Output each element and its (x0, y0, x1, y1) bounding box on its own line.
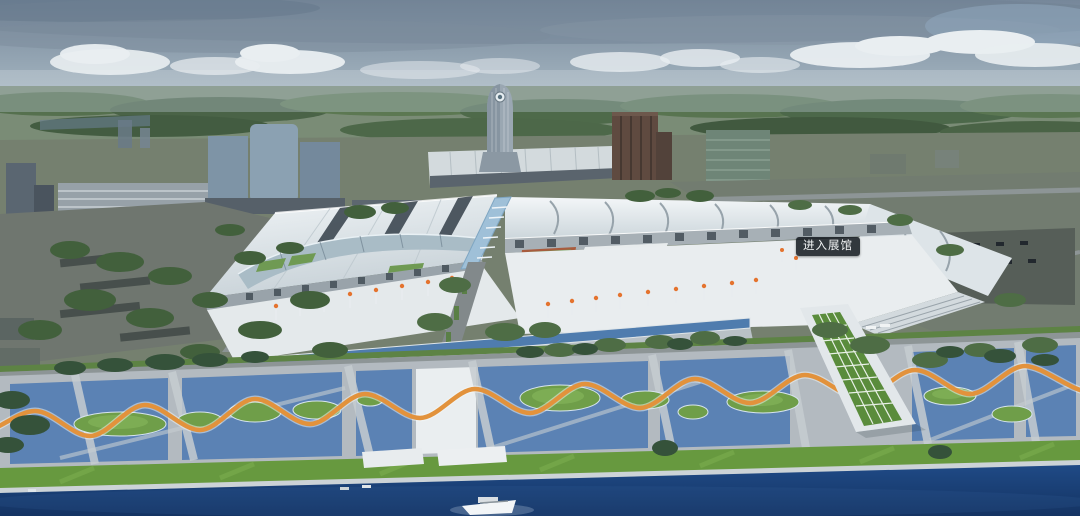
promenade-plaza (416, 367, 476, 454)
small-boat (28, 489, 36, 492)
hotspot-button[interactable]: 进入展馆 (796, 237, 860, 256)
small-boat (340, 487, 349, 490)
virtual-tour-scene: 进入展馆 (0, 0, 1080, 516)
small-boat (362, 485, 371, 488)
scene-rendering (0, 0, 1080, 516)
hotspot-label: 进入展馆 (803, 240, 853, 252)
